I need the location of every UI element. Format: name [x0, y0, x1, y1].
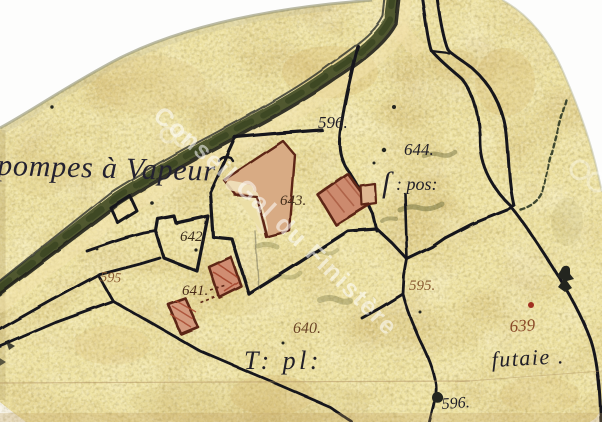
svg-text:595: 595: [100, 270, 122, 286]
svg-text:596.: 596.: [441, 394, 470, 413]
svg-text:: pos:: : pos:: [396, 174, 438, 194]
svg-text:642.: 642.: [180, 229, 206, 245]
svg-text:644.: 644.: [404, 140, 434, 159]
svg-text:futaie .: futaie .: [491, 343, 565, 372]
svg-text:641.: 641.: [182, 283, 208, 299]
svg-text:595.: 595.: [409, 278, 435, 294]
svg-text:639: 639: [509, 315, 536, 336]
svg-text:596.: 596.: [318, 113, 348, 132]
svg-text:T: pl:: T: pl:: [244, 346, 322, 375]
svg-text:pompes à Vapeur: pompes à Vapeur: [0, 149, 216, 188]
svg-text:640.: 640.: [293, 320, 321, 337]
